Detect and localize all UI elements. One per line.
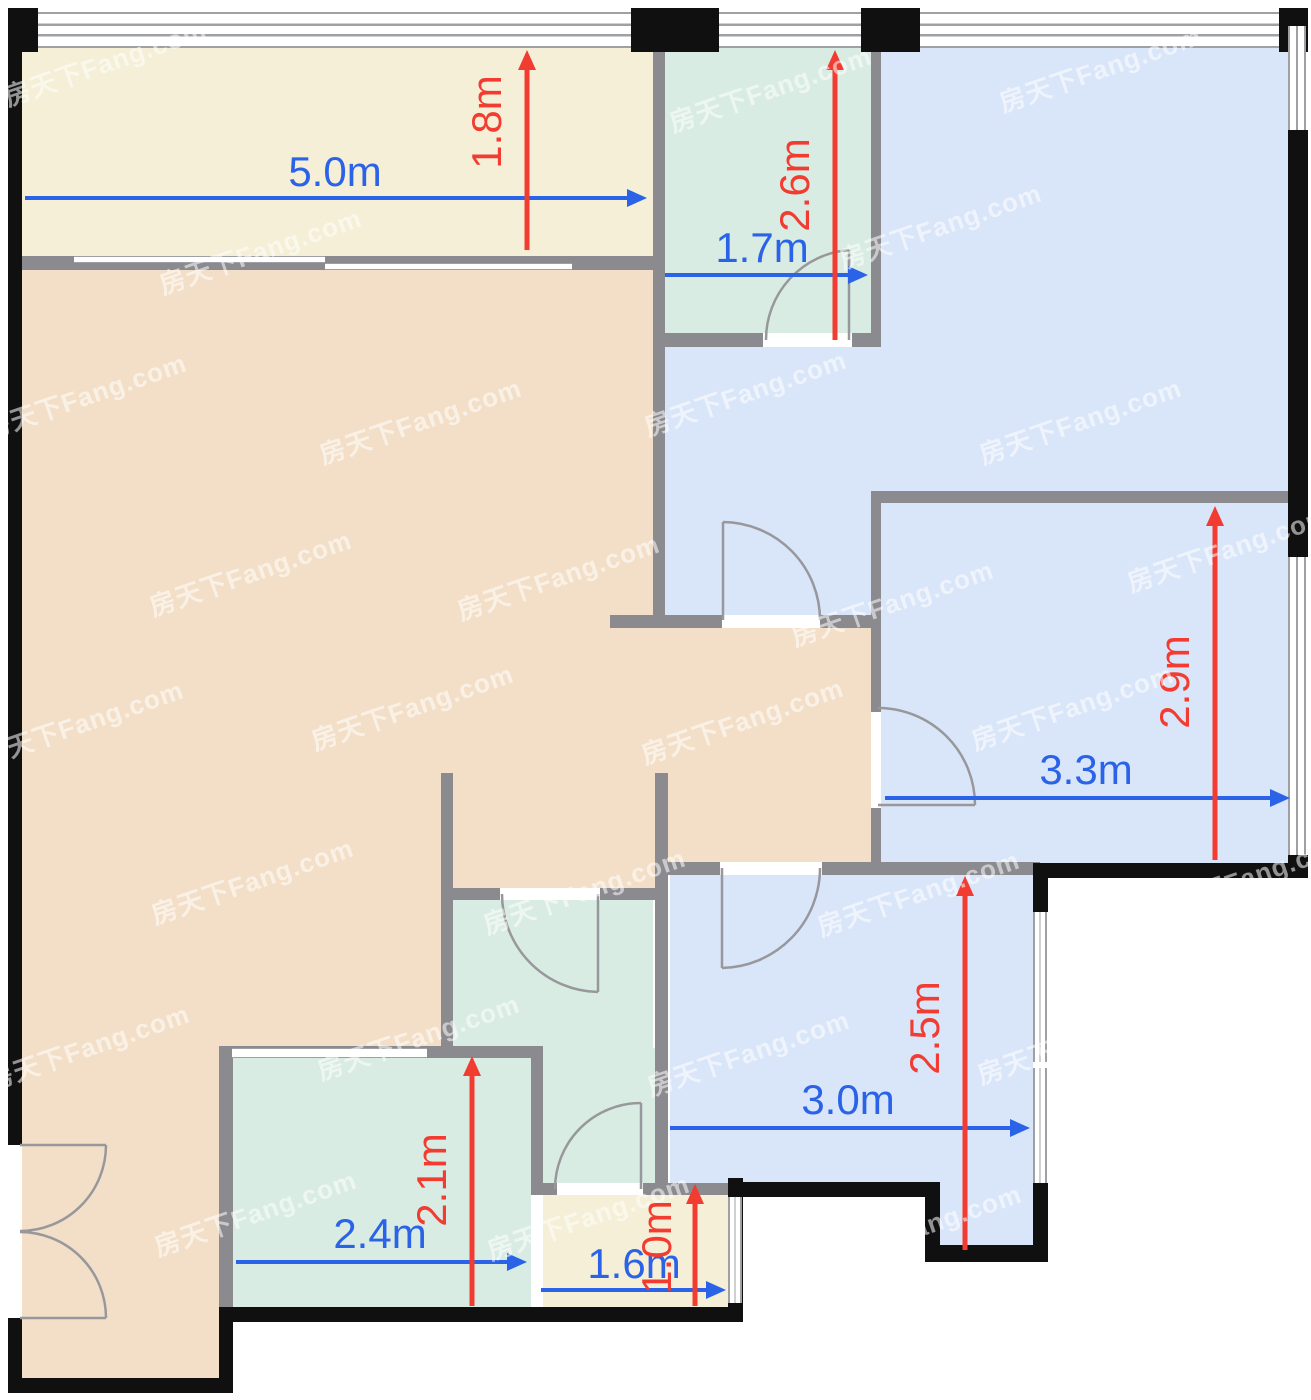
watermark-text: 房天下Fang.com — [812, 840, 1024, 944]
watermark-text: 房天下Fang.com — [314, 368, 526, 472]
watermark-text: 房天下Fang.com — [0, 670, 188, 774]
watermark-text: 房天下Fang.com — [154, 198, 366, 302]
watermark-text: 房天下Fang.com — [994, 16, 1206, 120]
watermark-text: 房天下Fang.com — [0, 994, 194, 1098]
watermark-text: 房天下Fang.com — [312, 984, 524, 1088]
watermark-text: 房天下Fang.com — [639, 340, 851, 444]
watermark-text: 房天下Fang.com — [636, 668, 848, 772]
watermark-text: 房天下Fang.com — [1142, 824, 1311, 928]
watermark-text: 房天下Fang.com — [478, 838, 690, 942]
watermark-text: 房天下Fang.com — [149, 1160, 361, 1264]
watermark-text: 房天下Fang.com — [0, 343, 191, 447]
watermark-text: 房天下Fang.com — [1122, 496, 1311, 600]
watermark-text: 房天下Fang.com — [146, 828, 358, 932]
watermark-text: 房天下Fang.com — [814, 1174, 1026, 1278]
watermark-text: 房天下Fang.com — [144, 520, 356, 624]
watermark-text: 房天下Fang.com — [318, 1310, 530, 1400]
watermark-text: 房天下Fang.com — [966, 654, 1178, 758]
watermark-text: 房天下Fang.com — [306, 654, 518, 758]
watermark-text: 房天下Fang.com — [664, 36, 876, 140]
floor-plan: 5.0m1.7m3.3m3.0m2.4m1.6m1.8m2.6m2.9m2.5m… — [0, 0, 1311, 1400]
watermark-text: 房天下Fang.com — [482, 1164, 694, 1268]
watermark-text: 房天下Fang.com — [834, 173, 1046, 277]
watermark-text: 房天下Fang.com — [452, 524, 664, 628]
watermark-text: 房天下Fang.com — [642, 1000, 854, 1104]
watermark-text: 房天下Fang.com — [972, 988, 1184, 1092]
watermark-text: 房天下Fang.com — [648, 1296, 860, 1400]
watermark-text: 房天下Fang.com — [0, 10, 211, 114]
watermark-text: 房天下Fang.com — [786, 550, 998, 654]
watermarks-layer: 房天下Fang.com房天下Fang.com房天下Fang.com房天下Fang… — [0, 0, 1311, 1400]
watermark-text: 房天下Fang.com — [974, 368, 1186, 472]
